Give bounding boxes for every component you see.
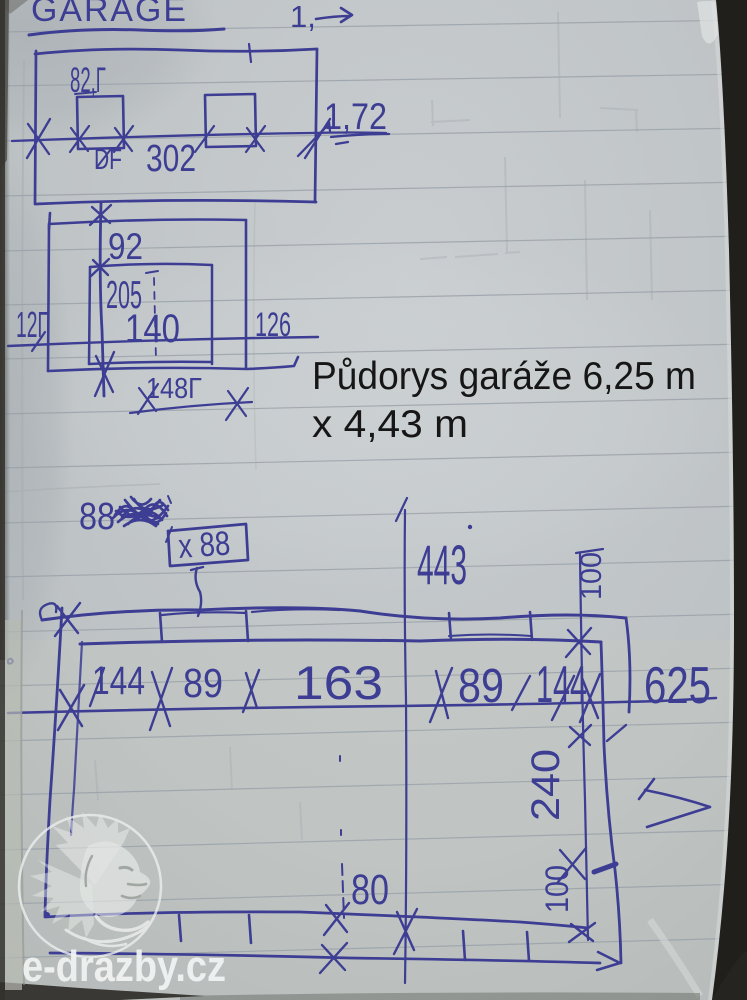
svg-text:625: 625 <box>644 657 711 715</box>
svg-text:89: 89 <box>183 660 223 706</box>
svg-text:80: 80 <box>351 866 389 914</box>
svg-text:12Γ: 12Γ <box>16 304 48 345</box>
svg-text:144: 144 <box>92 659 145 703</box>
svg-text:100: 100 <box>575 552 608 600</box>
svg-text:1,: 1, <box>290 0 316 34</box>
svg-text:140: 140 <box>125 307 180 351</box>
svg-text:144: 144 <box>536 656 587 714</box>
svg-text:89: 89 <box>458 660 504 713</box>
svg-text:x 4,43 m: x 4,43 m <box>312 403 468 446</box>
svg-text:GARAGE: GARAGE <box>31 0 188 29</box>
svg-text:88: 88 <box>79 496 115 538</box>
svg-text:163: 163 <box>294 656 383 709</box>
svg-text:Půdorys garáže 6,25 m: Půdorys garáže 6,25 m <box>312 355 696 398</box>
svg-text:240: 240 <box>524 749 568 821</box>
svg-text:100: 100 <box>539 865 575 913</box>
svg-text:1,72: 1,72 <box>324 96 387 137</box>
svg-text:92: 92 <box>108 226 143 267</box>
svg-text:443: 443 <box>417 533 467 596</box>
svg-text:x 88: x 88 <box>177 524 232 566</box>
svg-text:e-drazby.cz: e-drazby.cz <box>22 942 226 991</box>
svg-text:DF: DF <box>94 144 122 176</box>
svg-text:302: 302 <box>146 138 196 180</box>
svg-text:126: 126 <box>255 306 291 344</box>
